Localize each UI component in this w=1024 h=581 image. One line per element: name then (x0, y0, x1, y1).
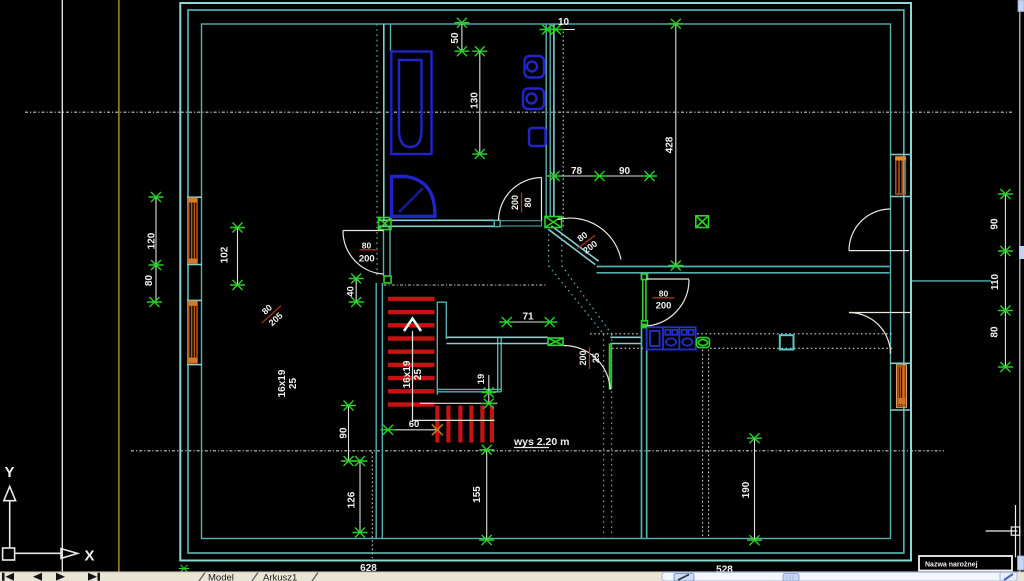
svg-text:71: 71 (522, 312, 534, 323)
svg-text:X: X (85, 548, 95, 565)
svg-text:428: 428 (665, 136, 676, 153)
svg-text:40: 40 (346, 286, 357, 297)
svg-text:130: 130 (470, 92, 481, 109)
svg-text:Arkusz1: Arkusz1 (263, 573, 297, 581)
svg-text:25: 25 (288, 378, 299, 390)
svg-text:80: 80 (659, 288, 669, 298)
svg-text:190: 190 (741, 481, 752, 498)
svg-text:90: 90 (619, 166, 631, 177)
svg-text:25: 25 (413, 369, 424, 381)
svg-text:80: 80 (362, 240, 372, 250)
svg-text:200: 200 (656, 301, 672, 312)
svg-text:102: 102 (220, 246, 231, 263)
svg-text:Y: Y (5, 464, 15, 481)
svg-text:200: 200 (359, 254, 375, 265)
svg-text:Nazwa narożnej: Nazwa narożnej (925, 562, 978, 569)
svg-text:16x19: 16x19 (402, 360, 413, 388)
svg-text:80: 80 (990, 326, 1001, 338)
svg-text:60: 60 (409, 419, 420, 430)
svg-text:200: 200 (510, 195, 520, 210)
svg-text:80: 80 (144, 275, 155, 287)
svg-text:wys 2.20 m: wys 2.20 m (513, 436, 569, 448)
svg-text:78: 78 (571, 166, 583, 177)
svg-text:200: 200 (578, 350, 588, 365)
svg-text:19: 19 (476, 374, 487, 385)
svg-text:10: 10 (558, 17, 570, 28)
svg-text:16x19: 16x19 (277, 369, 288, 397)
svg-text:Model: Model (208, 573, 234, 581)
svg-text:110: 110 (990, 273, 1001, 290)
svg-text:90: 90 (990, 218, 1001, 230)
svg-text:50: 50 (450, 32, 461, 44)
svg-text:126: 126 (347, 491, 358, 508)
svg-text:90: 90 (339, 427, 350, 439)
svg-text:155: 155 (472, 486, 483, 503)
svg-text:80: 80 (523, 197, 533, 207)
svg-text:25: 25 (591, 353, 601, 363)
svg-text:120: 120 (147, 232, 158, 249)
